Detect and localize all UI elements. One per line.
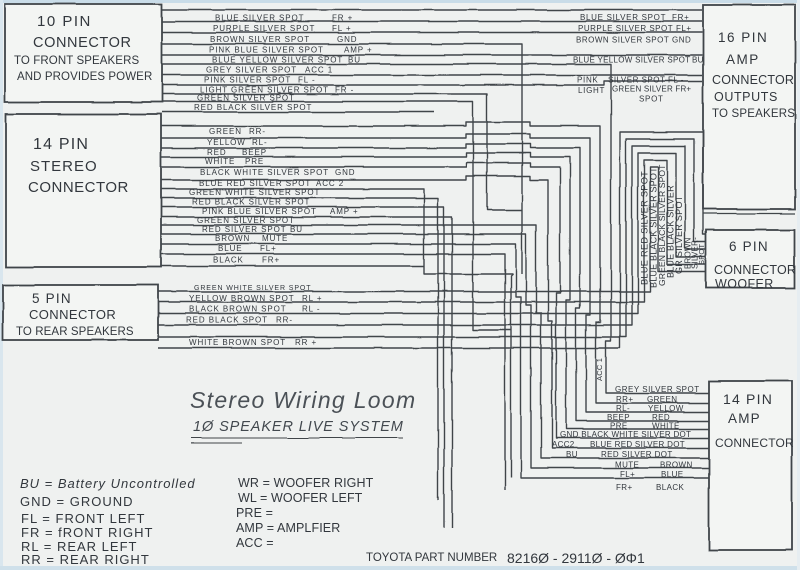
svg-text:RL-: RL- bbox=[616, 404, 630, 413]
svg-text:16 PIN: 16 PIN bbox=[718, 30, 768, 45]
svg-text:FR -: FR - bbox=[335, 85, 354, 94]
svg-text:BLUE RED SILVER SPOT: BLUE RED SILVER SPOT bbox=[199, 179, 311, 188]
svg-text:WOOFER: WOOFER bbox=[715, 277, 774, 291]
svg-text:BLUE: BLUE bbox=[661, 470, 684, 479]
svg-text:CONNECTOR: CONNECTOR bbox=[714, 263, 796, 277]
svg-text:ACC 1: ACC 1 bbox=[595, 358, 604, 381]
svg-text:PINK BLUE SILVER SPOT: PINK BLUE SILVER SPOT bbox=[202, 207, 317, 216]
svg-text:CONNECTOR: CONNECTOR bbox=[33, 35, 132, 51]
svg-text:RED SILVER SPOT: RED SILVER SPOT bbox=[202, 225, 286, 234]
svg-text:YELLOW: YELLOW bbox=[648, 404, 684, 413]
svg-text:CONNECTOR: CONNECTOR bbox=[712, 73, 794, 87]
svg-text:GREEN: GREEN bbox=[647, 395, 677, 404]
svg-text:BLACK: BLACK bbox=[656, 483, 684, 492]
svg-text:RR+: RR+ bbox=[616, 395, 633, 404]
svg-text:FL -: FL - bbox=[298, 76, 316, 85]
svg-text:TO SPEAKERS: TO SPEAKERS bbox=[712, 108, 795, 120]
svg-text:SILVER SPOT FL -: SILVER SPOT FL - bbox=[608, 76, 684, 85]
svg-text:FR = fRONT RIGHT: FR = fRONT RIGHT bbox=[21, 525, 153, 540]
svg-text:AMP: AMP bbox=[726, 52, 760, 67]
svg-text:FR+: FR+ bbox=[262, 256, 280, 265]
svg-text:GREEN SILVER FR+: GREEN SILVER FR+ bbox=[612, 85, 691, 94]
svg-text:BLUE YELLOW SILVER SPOT: BLUE YELLOW SILVER SPOT bbox=[212, 55, 343, 64]
svg-text:RR +: RR + bbox=[295, 338, 317, 347]
svg-text:WHITE BROWN SPOT: WHITE BROWN SPOT bbox=[189, 338, 286, 347]
svg-text:SPOT: SPOT bbox=[697, 244, 706, 265]
svg-text:BU: BU bbox=[566, 450, 578, 459]
svg-text:ACC 1: ACC 1 bbox=[305, 66, 333, 75]
svg-text:BLUE SILVER SPOT: BLUE SILVER SPOT bbox=[215, 13, 304, 22]
svg-text:GREY SILVER SPOT: GREY SILVER SPOT bbox=[206, 66, 297, 75]
svg-text:GND: GND bbox=[672, 36, 691, 45]
svg-text:BU: BU bbox=[348, 55, 361, 64]
svg-text:BLACK: BLACK bbox=[213, 256, 244, 265]
svg-text:RED: RED bbox=[207, 148, 227, 157]
svg-text:STEREO: STEREO bbox=[30, 158, 98, 175]
svg-text:Stereo Wiring Loom: Stereo Wiring Loom bbox=[190, 387, 416, 413]
svg-text:BLACK WHITE SILVER SPOT: BLACK WHITE SILVER SPOT bbox=[200, 168, 329, 177]
svg-text:GND = GROUND: GND = GROUND bbox=[20, 494, 133, 509]
svg-text:FL+: FL+ bbox=[676, 24, 692, 33]
svg-text:BLACK BROWN SPOT: BLACK BROWN SPOT bbox=[189, 305, 287, 314]
svg-text:FL+: FL+ bbox=[260, 244, 277, 253]
svg-text:WR = WOOFER RIGHT: WR = WOOFER RIGHT bbox=[238, 476, 374, 490]
svg-text:GR SILVER SPOT: GR SILVER SPOT bbox=[674, 195, 684, 274]
svg-text:WL = WOOFER LEFT: WL = WOOFER LEFT bbox=[238, 491, 363, 505]
svg-text:AMP = AMPLFIER: AMP = AMPLFIER bbox=[236, 521, 340, 535]
svg-text:CONNECTOR: CONNECTOR bbox=[28, 179, 129, 196]
svg-text:TOYOTA PART NUMBER: TOYOTA PART NUMBER bbox=[366, 552, 497, 564]
svg-text:BROWN SILVER SPOT: BROWN SILVER SPOT bbox=[210, 35, 310, 44]
svg-text:14 PIN: 14 PIN bbox=[723, 391, 773, 407]
svg-text:CONNECTOR: CONNECTOR bbox=[29, 307, 116, 322]
svg-text:8216Ø - 2911Ø - ØΦ1: 8216Ø - 2911Ø - ØΦ1 bbox=[507, 550, 645, 566]
svg-text:FR +: FR + bbox=[332, 13, 353, 22]
svg-text:FL+: FL+ bbox=[620, 470, 635, 479]
svg-text:GREY SILVER SPOT: GREY SILVER SPOT bbox=[615, 385, 700, 394]
svg-text:YELLOW BROWN SPOT: YELLOW BROWN SPOT bbox=[189, 294, 295, 303]
svg-text:RED BLACK SILVER SPOT: RED BLACK SILVER SPOT bbox=[192, 198, 310, 207]
svg-text:GND: GND bbox=[337, 35, 357, 44]
svg-text:GREEN: GREEN bbox=[209, 127, 242, 136]
svg-text:FL = FRONT LEFT: FL = FRONT LEFT bbox=[21, 511, 145, 526]
svg-text:AND PROVIDES POWER: AND PROVIDES POWER bbox=[17, 71, 152, 83]
svg-text:GREEN SILVER SPOT: GREEN SILVER SPOT bbox=[197, 94, 295, 103]
svg-text:BEEP: BEEP bbox=[242, 148, 267, 157]
svg-text:BU = Battery Uncontrolled: BU = Battery Uncontrolled bbox=[20, 476, 196, 491]
svg-text:WHITE: WHITE bbox=[205, 157, 235, 166]
svg-text:FL +: FL + bbox=[332, 24, 352, 33]
svg-text:BROWN SILVER SPOT: BROWN SILVER SPOT bbox=[576, 36, 669, 45]
svg-text:10 PIN: 10 PIN bbox=[37, 13, 92, 30]
svg-text:MUTE: MUTE bbox=[262, 234, 288, 243]
svg-text:BLUE: BLUE bbox=[218, 244, 243, 253]
svg-text:PURPLE SILVER SPOT: PURPLE SILVER SPOT bbox=[213, 24, 315, 33]
svg-text:RR-: RR- bbox=[249, 127, 266, 136]
svg-text:FR+: FR+ bbox=[616, 483, 633, 492]
svg-text:RL-: RL- bbox=[252, 138, 268, 147]
svg-text:AMP +: AMP + bbox=[330, 207, 359, 216]
svg-text:5 PIN: 5 PIN bbox=[32, 291, 72, 306]
svg-text:BROWN: BROWN bbox=[660, 461, 693, 470]
svg-text:GND: GND bbox=[335, 168, 355, 177]
svg-text:BU: BU bbox=[692, 55, 704, 64]
svg-text:AMP +: AMP + bbox=[344, 46, 373, 55]
svg-text:AMP: AMP bbox=[728, 411, 761, 426]
svg-text:PINK SILVER SPOT: PINK SILVER SPOT bbox=[204, 76, 291, 85]
svg-text:BLUE YELLOW SILVER SPOT: BLUE YELLOW SILVER SPOT bbox=[573, 55, 690, 64]
svg-text:FR+: FR+ bbox=[672, 13, 689, 22]
svg-text:OUTPUTS: OUTPUTS bbox=[714, 90, 778, 104]
svg-text:PURPLE SILVER SPOT: PURPLE SILVER SPOT bbox=[578, 24, 673, 33]
svg-text:GREEN WHITE SILVER SPOT: GREEN WHITE SILVER SPOT bbox=[189, 188, 320, 197]
svg-text:LIGHT: LIGHT bbox=[578, 86, 605, 95]
svg-text:14 PIN: 14 PIN bbox=[33, 136, 89, 153]
svg-text:PINK: PINK bbox=[577, 76, 598, 85]
svg-text:BLUE RED SILVER DOT: BLUE RED SILVER DOT bbox=[590, 440, 685, 449]
svg-text:TO FRONT SPEAKERS: TO FRONT SPEAKERS bbox=[14, 55, 139, 67]
svg-text:SPOT: SPOT bbox=[639, 95, 664, 104]
svg-text:RED SILVER DOT: RED SILVER DOT bbox=[601, 450, 673, 459]
svg-text:MUTE: MUTE bbox=[615, 461, 639, 470]
svg-text:PRE =: PRE = bbox=[236, 506, 273, 520]
svg-text:RED BLACK SPOT: RED BLACK SPOT bbox=[186, 316, 268, 325]
svg-text:RED BLACK SILVER SPOT: RED BLACK SILVER SPOT bbox=[194, 103, 312, 112]
svg-text:1Ø SPEAKER LIVE SYSTEM: 1Ø SPEAKER LIVE SYSTEM bbox=[193, 419, 404, 435]
svg-text:TO REAR SPEAKERS: TO REAR SPEAKERS bbox=[16, 326, 134, 338]
svg-text:RL +: RL + bbox=[302, 294, 322, 303]
svg-text:RR = REAR RIGHT: RR = REAR RIGHT bbox=[21, 552, 150, 567]
svg-text:ACC =: ACC = bbox=[236, 536, 274, 550]
svg-text:RL -: RL - bbox=[302, 305, 320, 314]
svg-text:BROWN: BROWN bbox=[215, 234, 250, 243]
svg-text:BLUE SILVER SPOT: BLUE SILVER SPOT bbox=[580, 13, 666, 22]
svg-text:RR-: RR- bbox=[276, 316, 293, 325]
svg-text:BU: BU bbox=[290, 225, 303, 234]
svg-text:PINK BLUE SILVER SPOT: PINK BLUE SILVER SPOT bbox=[209, 46, 324, 55]
svg-text:GREEN WHITE SILVER SPOT: GREEN WHITE SILVER SPOT bbox=[194, 285, 311, 292]
svg-text:ACC2: ACC2 bbox=[552, 440, 575, 449]
svg-text:GND BLACK WHITE SILVER DOT: GND BLACK WHITE SILVER DOT bbox=[560, 430, 691, 439]
svg-text:PRE: PRE bbox=[245, 157, 264, 166]
svg-text:YELLOW: YELLOW bbox=[207, 138, 246, 147]
svg-text:CONNECTOR: CONNECTOR bbox=[715, 436, 794, 450]
svg-text:6 PIN: 6 PIN bbox=[729, 239, 769, 254]
svg-text:ACC 2: ACC 2 bbox=[316, 179, 344, 188]
